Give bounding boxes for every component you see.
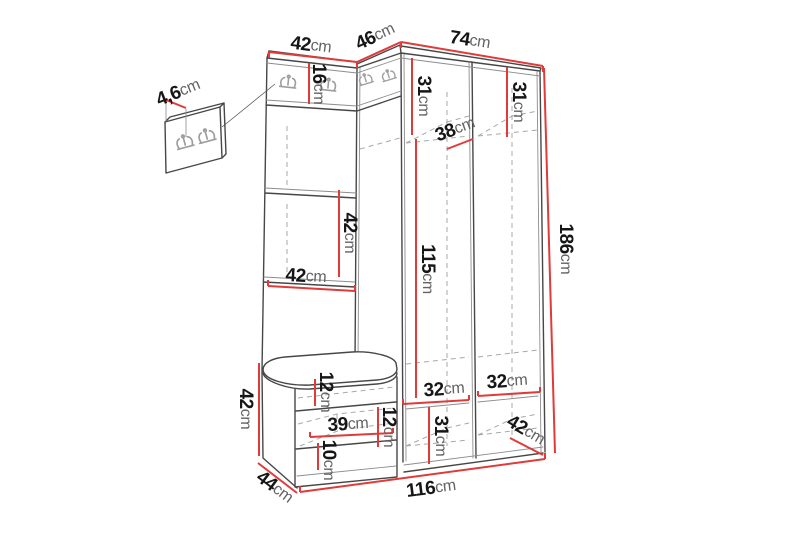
dim-left-middle-compartment-height: 42cm — [339, 190, 361, 277]
dim-label-left-middle-compartment-height: 42cm — [340, 213, 361, 254]
dim-label-right-col2-bottom-shelf-width: 32cm — [486, 369, 528, 393]
dim-right-col1-top-compartment-height: 31cm — [412, 58, 435, 135]
diagram-canvas: 4,6cm 42cm 46cm 74cm 16cm 31cm 31cm — [0, 0, 800, 533]
dim-label-left-compartment-width: 42cm — [285, 264, 327, 287]
dim-right-col1-bottom-shelf-width: 32cm — [403, 377, 469, 404]
coat-hook-icon — [380, 68, 396, 82]
dim-right-col2-top-compartment-height: 31cm — [507, 67, 530, 137]
coat-hook-icon — [280, 74, 297, 88]
dim-overall-height: 186cm — [544, 68, 577, 453]
dim-bench-height: 42cm — [236, 363, 260, 456]
dim-label-right-col1-bottom-compartment-height: 31cm — [431, 416, 452, 457]
dim-right-col1-bottom-compartment-height: 31cm — [429, 407, 452, 464]
corner-section-outline — [357, 53, 403, 462]
dim-label-right-section-width: 74cm — [448, 26, 492, 53]
corner-section-hidden-lines — [360, 138, 400, 149]
dim-label-overall-width: 116cm — [405, 475, 457, 502]
dim-label-right-col1-bottom-shelf-width: 32cm — [423, 377, 465, 401]
dim-label-right-col2-top-compartment-height: 31cm — [509, 82, 530, 123]
dim-interior-height: 115cm — [416, 139, 439, 398]
dim-bench-depth: 44cm — [252, 463, 297, 508]
dim-label-overall-height: 186cm — [556, 224, 577, 275]
dim-right-section-depth: 42cm — [503, 410, 549, 455]
dim-label-right-section-depth: 42cm — [503, 410, 549, 449]
dim-label-bench-height: 42cm — [236, 389, 257, 430]
corner-section-secondary-lines — [357, 53, 406, 461]
dim-bench-bottom-rail-height: 10cm — [318, 440, 340, 481]
dim-label-bench-bottom-rail-height: 10cm — [319, 440, 340, 481]
dim-corner-compartment-depth: 38cm — [432, 112, 478, 149]
dim-label-bench-depth: 44cm — [252, 466, 297, 507]
dim-label-bench-top-rail-height: 12cm — [316, 372, 337, 413]
dim-label-interior-height: 115cm — [418, 244, 439, 294]
dim-right-col2-bottom-shelf-width: 32cm — [478, 369, 540, 396]
dim-line — [544, 68, 555, 453]
dim-label-right-col1-top-compartment-height: 31cm — [414, 76, 435, 117]
dim-label-bench-niche-width: 39cm — [327, 412, 369, 435]
dim-bench-top-rail-height: 12cm — [315, 372, 337, 413]
dim-hook-panel-height: 16cm — [309, 63, 330, 104]
bench-plinth-line — [297, 466, 396, 476]
furniture-dimension-diagram: 4,6cm 42cm 46cm 74cm 16cm 31cm 31cm — [0, 0, 800, 533]
dim-bench-niche-height: 12cm — [378, 407, 400, 448]
dimensions: 4,6cm 42cm 46cm 74cm 16cm 31cm 31cm — [153, 18, 577, 508]
dim-label-bench-niche-height: 12cm — [379, 407, 400, 448]
dim-label-hook-panel-height: 16cm — [309, 64, 330, 105]
